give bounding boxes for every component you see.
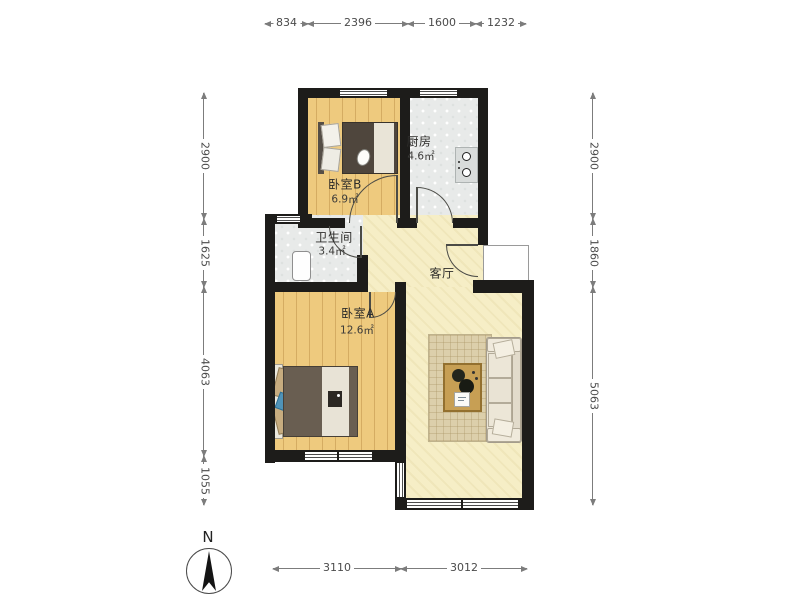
wall xyxy=(453,218,488,228)
sofa-pillow xyxy=(492,418,514,437)
dim-left-1625: 1625 xyxy=(203,219,204,287)
compass-north-label: N xyxy=(202,528,213,546)
arrow-left-icon xyxy=(272,566,279,572)
bed-b-pillow xyxy=(321,147,342,172)
window-kitchen xyxy=(420,88,457,98)
arrow-right-icon xyxy=(520,21,527,27)
window-bathroom xyxy=(277,214,300,224)
dim-value: 1055 xyxy=(198,464,211,498)
dim-right-5063: 5063 xyxy=(592,287,593,505)
dim-value: 2900 xyxy=(587,139,600,173)
wall xyxy=(298,88,308,228)
wall xyxy=(473,280,534,293)
room-area-kitchen: 4.6㎡ xyxy=(407,149,434,164)
room-label-kitchen: 厨房 xyxy=(406,133,431,150)
wall xyxy=(397,218,417,228)
dim-top-1600: 1600 xyxy=(408,23,476,24)
arrow-up-icon xyxy=(201,286,207,293)
dim-value: 2396 xyxy=(341,17,375,30)
dim-left-4063: 4063 xyxy=(203,287,204,456)
window-mullion xyxy=(337,452,339,460)
table-card-line xyxy=(458,400,464,401)
arrow-up-icon xyxy=(201,218,207,225)
arrow-left-icon xyxy=(475,21,482,27)
arrow-up-icon xyxy=(201,92,207,99)
cooktop-knob xyxy=(458,167,460,169)
window-bedroom-b xyxy=(340,88,387,98)
floor-plan: 卧室B 6.9㎡ 厨房 4.6㎡ 卫生间 3.4㎡ 卧室A 12.6㎡ 客厅 8… xyxy=(0,0,800,600)
room-label-bedroom-b: 卧室B xyxy=(328,176,362,193)
cooktop-knob xyxy=(458,161,460,163)
arrow-left-icon xyxy=(307,21,314,27)
dim-right-2900: 2900 xyxy=(592,93,593,219)
dim-right-1860: 1860 xyxy=(592,219,593,287)
room-label-living-room: 客厅 xyxy=(429,265,454,282)
dim-value: 834 xyxy=(273,17,300,30)
door-panel-kitchen xyxy=(416,187,418,223)
dim-value: 1625 xyxy=(198,236,211,270)
door-panel-bedroom-b xyxy=(396,175,398,223)
arrow-up-icon xyxy=(201,455,207,462)
entry-landing xyxy=(483,245,529,281)
table-card-line xyxy=(458,397,466,398)
dim-bottom-3110: 3110 xyxy=(273,568,401,569)
wall xyxy=(372,450,406,462)
bathroom-fixture xyxy=(292,251,311,281)
wall xyxy=(265,282,368,292)
wall xyxy=(395,282,406,463)
bed-a-tray xyxy=(328,391,342,407)
arrow-left-icon xyxy=(264,21,271,27)
wall xyxy=(265,214,275,463)
dim-value: 1232 xyxy=(484,17,518,30)
cooktop-burner xyxy=(462,168,471,177)
dim-left-2900: 2900 xyxy=(203,93,204,219)
room-area-bathroom: 3.4㎡ xyxy=(318,244,345,259)
dim-value: 3110 xyxy=(320,562,354,575)
room-area-bedroom-b: 6.9㎡ xyxy=(331,192,358,207)
arrow-left-icon xyxy=(400,566,407,572)
arrow-up-icon xyxy=(590,218,596,225)
wall xyxy=(298,214,312,224)
dim-value: 4063 xyxy=(198,355,211,389)
cooktop-burner xyxy=(462,152,471,161)
wall xyxy=(395,498,407,510)
arrow-down-icon xyxy=(201,499,207,506)
dim-top-2396: 2396 xyxy=(308,23,408,24)
sofa-seat xyxy=(488,378,512,403)
dim-value: 2900 xyxy=(198,139,211,173)
dim-top-1232: 1232 xyxy=(476,23,526,24)
bed-b-duvet xyxy=(374,123,394,173)
dim-value: 1600 xyxy=(425,17,459,30)
dim-bottom-3012: 3012 xyxy=(401,568,527,569)
door-panel-entry xyxy=(446,244,478,246)
table-dot xyxy=(475,377,478,380)
arrow-left-icon xyxy=(407,21,414,27)
arrow-up-icon xyxy=(590,286,596,293)
arrow-down-icon xyxy=(590,499,596,506)
dim-value: 5063 xyxy=(587,379,600,413)
bed-b-pillow xyxy=(321,123,342,148)
dim-left-1055: 1055 xyxy=(203,456,204,505)
window-living-side xyxy=(395,463,406,497)
arrow-right-icon xyxy=(521,566,528,572)
dim-value: 1860 xyxy=(587,236,600,270)
dim-top-834: 834 xyxy=(265,23,308,24)
wall xyxy=(522,281,534,510)
wall xyxy=(265,450,305,462)
window-mullion xyxy=(461,500,463,508)
dim-value: 3012 xyxy=(447,562,481,575)
arrow-up-icon xyxy=(590,92,596,99)
bed-a-tray-dot xyxy=(337,394,340,397)
room-label-bedroom-a: 卧室A xyxy=(341,305,375,322)
room-area-bedroom-a: 12.6㎡ xyxy=(340,323,374,338)
door-panel-bathroom xyxy=(360,226,362,258)
table-dot xyxy=(472,371,475,374)
